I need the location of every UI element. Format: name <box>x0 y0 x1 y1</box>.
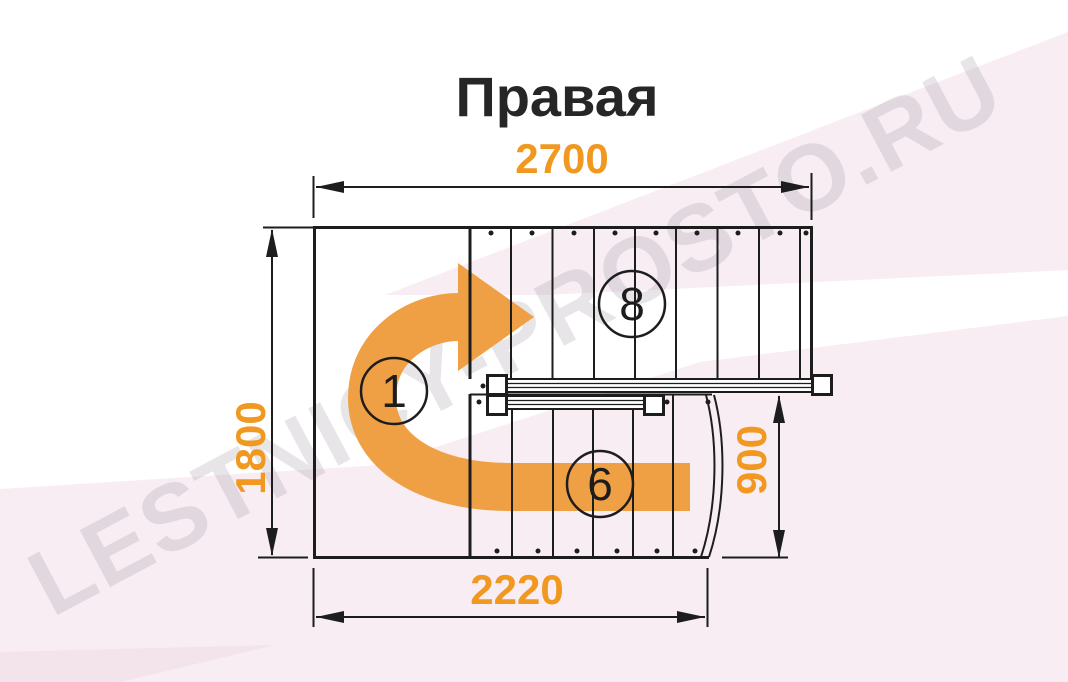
step-number-start: 1 <box>381 365 407 417</box>
dim-arrow-left-icon <box>316 181 344 193</box>
dimension-left-value: 1800 <box>227 401 274 494</box>
dimension-right-value: 900 <box>728 425 775 495</box>
step-number-lower: 6 <box>587 458 613 510</box>
dim-arrow-up-icon <box>266 229 278 257</box>
lower-handrail-beam <box>505 396 645 409</box>
newel-post <box>813 376 832 395</box>
newel-post <box>488 376 507 395</box>
newel-post <box>488 396 507 415</box>
dimension-bottom-value: 2220 <box>470 566 563 613</box>
page-title: Правая <box>455 65 658 128</box>
drawing-canvas: LESTNICY-PROSTO.RU <box>0 0 1068 682</box>
staircase-drawing: LESTNICY-PROSTO.RU <box>0 0 1068 682</box>
dimension-top-value: 2700 <box>515 135 608 182</box>
upper-handrail-beam <box>505 379 813 392</box>
newel-post <box>645 396 664 415</box>
step-number-upper: 8 <box>619 278 645 330</box>
